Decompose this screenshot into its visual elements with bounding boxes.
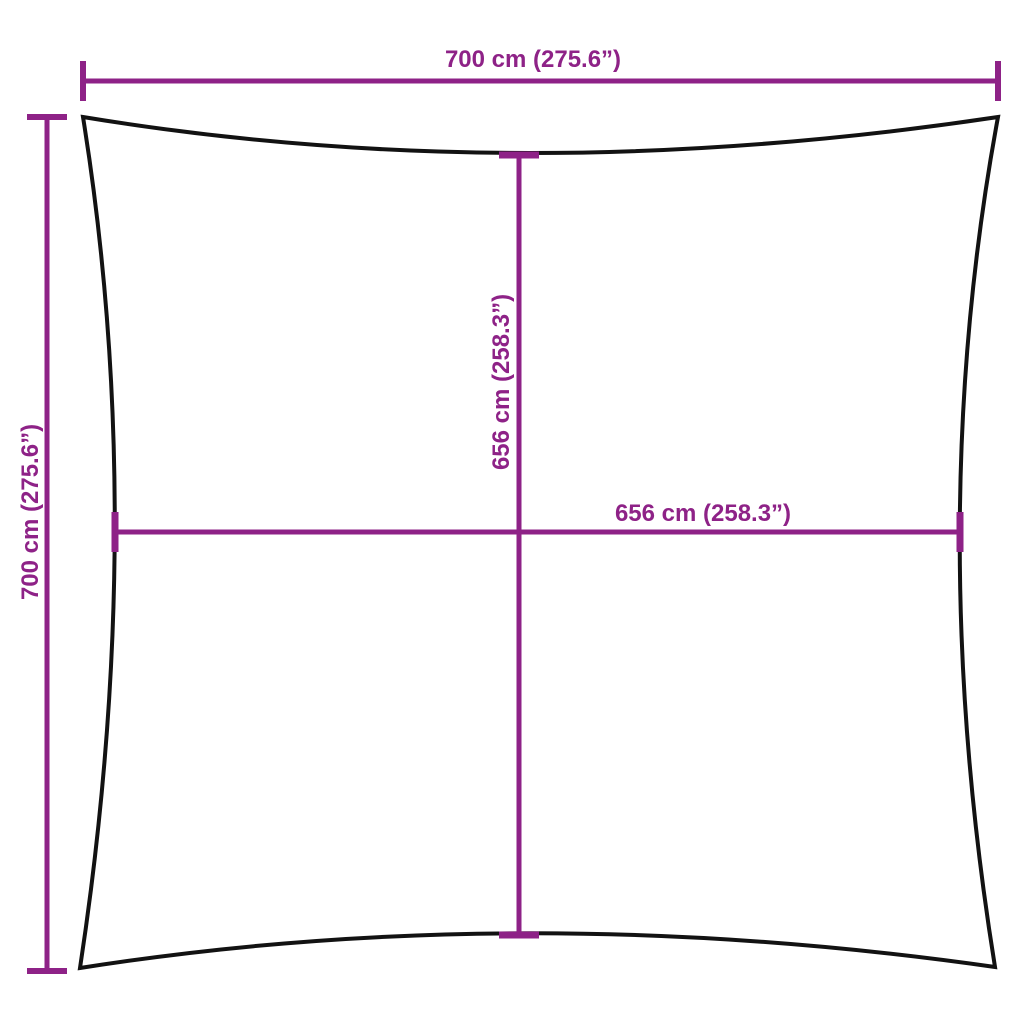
inner-height-label: 656 cm (258.3”)	[488, 294, 515, 470]
outer-height-label: 700 cm (275.6”)	[17, 424, 44, 600]
inner-vertical-dimension: 656 cm (258.3”)	[488, 155, 539, 935]
top-dimension: 700 cm (275.6”)	[83, 46, 998, 101]
left-dimension: 700 cm (275.6”)	[17, 117, 67, 971]
inner-width-label: 656 cm (258.3”)	[615, 500, 791, 527]
inner-horizontal-dimension: 656 cm (258.3”)	[115, 500, 960, 552]
sail-outline	[80, 117, 998, 968]
diagram-canvas: 700 cm (275.6”) 700 cm (275.6”) 656 cm (…	[0, 0, 1024, 1024]
dimension-diagram: 700 cm (275.6”) 700 cm (275.6”) 656 cm (…	[0, 0, 1024, 1024]
outer-width-label: 700 cm (275.6”)	[445, 46, 621, 73]
